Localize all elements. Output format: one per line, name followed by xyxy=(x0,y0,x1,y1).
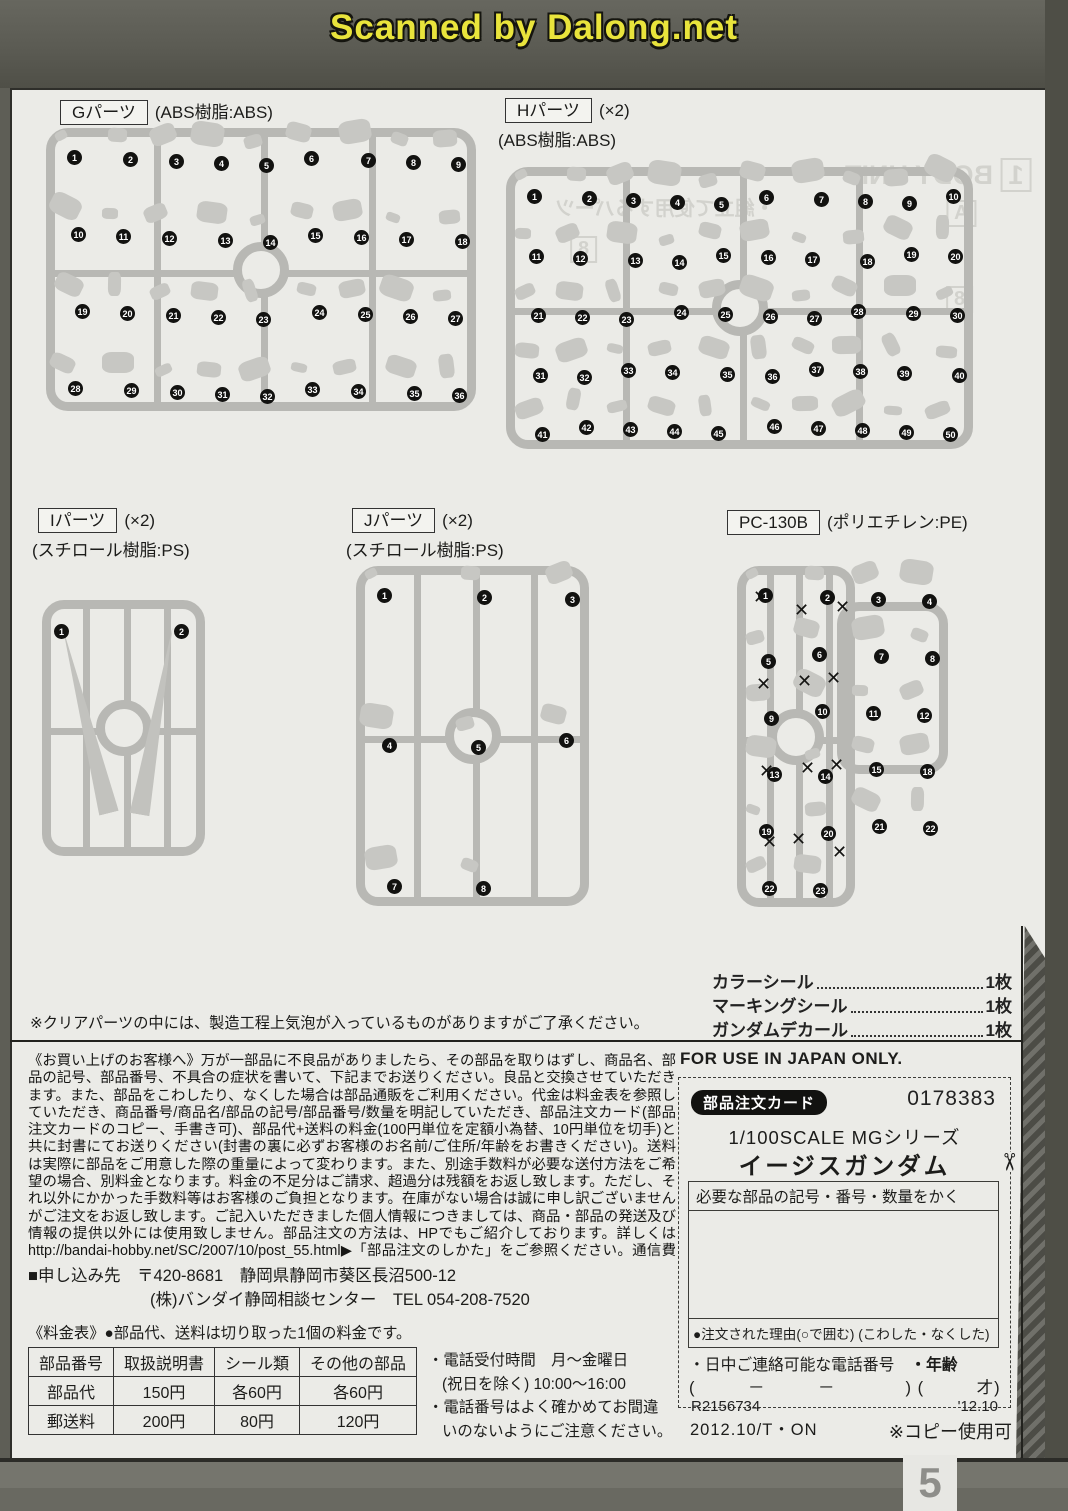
part-number-badge: 26 xyxy=(763,309,778,324)
price-table-cell: 120円 xyxy=(300,1406,417,1435)
runner-j-name: Jパーツ xyxy=(352,508,435,533)
part-number-badge: 9 xyxy=(451,157,466,172)
part-number-badge: 22 xyxy=(211,310,226,325)
application-address-line1: ■申し込み先 〒420-8681 静岡県静岡市葵区長沼500-12 xyxy=(28,1262,456,1286)
part-shape xyxy=(842,229,864,245)
part-number-badge: 7 xyxy=(814,192,829,207)
sticker-name: カラーシール xyxy=(712,968,814,993)
sticker-row: マーキングシール1枚 xyxy=(712,993,1012,1017)
runner-center-ring xyxy=(233,242,289,298)
part-number-badge: 41 xyxy=(535,427,550,442)
part-number-badge: 12 xyxy=(917,708,932,723)
part-number-badge: 21 xyxy=(872,819,887,834)
part-number-badge: 1 xyxy=(54,624,69,639)
part-number-badge: 8 xyxy=(476,881,491,896)
part-number-badge: 13 xyxy=(628,253,643,268)
part-shape xyxy=(883,168,908,187)
part-number-badge: 24 xyxy=(312,305,327,320)
runner-h-name: Hパーツ xyxy=(505,98,592,123)
part-shape xyxy=(832,336,861,355)
price-table-cell: 各60円 xyxy=(300,1377,417,1406)
part-shape xyxy=(745,734,778,759)
part-number-badge: 7 xyxy=(387,879,402,894)
part-number-badge: 9 xyxy=(764,711,779,726)
part-shape xyxy=(438,353,456,379)
parts-runner-pc: ✕✕✕✕✕✕✕✕✕✕✕✕1234567891011121314151819202… xyxy=(737,566,948,907)
parts-runner-g: 1234567891011121314151617181920212223242… xyxy=(46,128,476,411)
part-shape xyxy=(750,334,768,360)
runner-g-name: Gパーツ xyxy=(60,100,148,125)
part-number-badge: 35 xyxy=(407,386,422,401)
unused-slot-x-mark: ✕ xyxy=(835,598,850,616)
unused-slot-x-mark: ✕ xyxy=(794,601,809,619)
sticker-row: カラーシール1枚 xyxy=(712,969,1012,993)
part-number-badge: 3 xyxy=(626,193,641,208)
runner-label-j: Jパーツ(×2) xyxy=(352,508,473,533)
part-number-badge: 19 xyxy=(75,304,90,319)
sticker-row: ガンダムデカール1枚 xyxy=(712,1017,1012,1041)
scanned-manual-page: Scanned by Dalong.net 1 BODY UNIT ・組立て使用… xyxy=(0,0,1068,1511)
part-number-badge: 9 xyxy=(902,196,917,211)
part-shape xyxy=(555,280,584,301)
part-number-badge: 6 xyxy=(559,733,574,748)
part-number-badge: 46 xyxy=(767,419,782,434)
price-table-cell: 200円 xyxy=(114,1406,215,1435)
part-number-badge: 12 xyxy=(162,231,177,246)
phone-note-line: ・電話受付時間 月〜金曜日 xyxy=(428,1349,680,1373)
customer-notice-body: 《お買い上げのお客様へ》万が一部品に不良品がありましたら、その部品を取りはずし、… xyxy=(28,1053,676,1259)
part-number-badge: 10 xyxy=(815,704,830,719)
part-number-badge: 12 xyxy=(573,251,588,266)
part-number-badge: 10 xyxy=(946,189,961,204)
price-table: 部品番号取扱説明書シール類その他の部品部品代150円各60円各60円郵送料200… xyxy=(28,1347,417,1435)
part-number-badge: 7 xyxy=(874,649,889,664)
order-card-product: イージスガンダム xyxy=(679,1147,1010,1181)
part-number-badge: 32 xyxy=(260,389,275,404)
part-number-badge: 2 xyxy=(174,624,189,639)
part-number-badge: 31 xyxy=(533,368,548,383)
part-shape xyxy=(196,200,229,225)
runner-i-name: Iパーツ xyxy=(38,508,117,533)
part-number-badge: 18 xyxy=(860,254,875,269)
part-number-badge: 2 xyxy=(582,191,597,206)
part-number-badge: 11 xyxy=(529,249,544,264)
watermark: Scanned by Dalong.net xyxy=(0,8,1068,48)
part-shape xyxy=(102,352,134,373)
part-shape xyxy=(898,558,934,587)
runner-label-i: Iパーツ(×2) xyxy=(38,508,155,533)
runner-pc-name: PC-130B xyxy=(727,510,820,535)
part-number-badge: 5 xyxy=(714,197,729,212)
part-number-badge: 20 xyxy=(948,249,963,264)
dot-leader xyxy=(851,1011,983,1013)
part-number-badge: 29 xyxy=(906,306,921,321)
part-number-badge: 42 xyxy=(579,420,594,435)
runner-j-material: (スチロール樹脂:PS) xyxy=(346,536,504,561)
print-code: 2012.10/T・ON xyxy=(690,1416,818,1440)
order-card-fill-area: 必要な部品の記号・番号・数量をかく ●注文された理由(○で囲む) (こわした・な… xyxy=(688,1181,999,1348)
part-number-badge: 29 xyxy=(124,383,139,398)
part-number-badge: 45 xyxy=(711,426,726,441)
part-number-badge: 1 xyxy=(527,189,542,204)
part-number-badge: 3 xyxy=(565,592,580,607)
part-shape xyxy=(884,405,903,415)
part-number-badge: 20 xyxy=(821,826,836,841)
bleedthrough-unit-number: 1 xyxy=(1001,158,1032,192)
part-shape xyxy=(190,280,219,301)
part-number-badge: 37 xyxy=(809,362,824,377)
runner-center-ring xyxy=(445,708,501,764)
part-shape xyxy=(102,208,118,220)
sticker-count: 1枚 xyxy=(986,992,1012,1017)
part-shape xyxy=(911,787,924,811)
runner-label-g: Gパーツ(ABS樹脂:ABS) xyxy=(60,98,273,125)
order-card-date: '12.10 xyxy=(958,1398,998,1415)
part-number-badge: 35 xyxy=(720,367,735,382)
part-number-badge: 26 xyxy=(403,309,418,324)
part-shape xyxy=(852,685,868,697)
part-number-badge: 16 xyxy=(761,250,776,265)
section-divider xyxy=(10,1040,1023,1042)
part-number-badge: 4 xyxy=(214,156,229,171)
part-number-badge: 8 xyxy=(925,651,940,666)
part-shape xyxy=(567,167,587,182)
part-number-badge: 39 xyxy=(897,366,912,381)
part-number-badge: 25 xyxy=(718,307,733,322)
part-number-badge: 16 xyxy=(354,230,369,245)
part-number-badge: 14 xyxy=(672,255,687,270)
part-number-badge: 21 xyxy=(166,308,181,323)
part-number-badge: 1 xyxy=(758,588,773,603)
part-number-badge: 34 xyxy=(665,365,680,380)
part-number-badge: 19 xyxy=(904,247,919,262)
part-number-badge: 7 xyxy=(361,153,376,168)
part-number-badge: 6 xyxy=(812,647,827,662)
part-shape xyxy=(438,209,460,225)
part-shape xyxy=(196,361,221,378)
phone-age-blanks: ( － － ) ( 才) xyxy=(689,1374,1001,1398)
price-table-row: 郵送料200円80円120円 xyxy=(29,1406,417,1435)
parts-runner-i: 12 xyxy=(42,600,205,856)
part-number-badge: 4 xyxy=(670,195,685,210)
part-number-badge: 1 xyxy=(67,150,82,165)
part-shape xyxy=(804,801,826,817)
part-number-badge: 28 xyxy=(68,381,83,396)
part-number-badge: 15 xyxy=(716,248,731,263)
part-shape xyxy=(791,289,810,302)
part-number-badge: 19 xyxy=(759,824,774,839)
part-number-badge: 34 xyxy=(351,384,366,399)
order-card-footer: R2156734 '12.10 xyxy=(691,1398,998,1415)
part-number-badge: 50 xyxy=(943,427,958,442)
unused-slot-x-mark: ✕ xyxy=(826,669,841,687)
part-number-badge: 30 xyxy=(950,308,965,323)
price-table-title: 《料金表》●部品代、送料は切り取った1個の料金です。 xyxy=(28,1321,411,1343)
part-number-badge: 20 xyxy=(120,306,135,321)
scissors-icon: ✂ xyxy=(994,1152,1022,1172)
part-number-badge: 22 xyxy=(762,881,777,896)
part-number-badge: 22 xyxy=(923,821,938,836)
contact-phone-label: ・日中ご連絡可能な電話番号 ・年齢 xyxy=(689,1352,958,1375)
price-table-cell: 150円 xyxy=(114,1377,215,1406)
page-number-box: 5 xyxy=(903,1455,957,1511)
sticker-name: マーキングシール xyxy=(712,992,848,1017)
part-number-badge: 36 xyxy=(452,388,467,403)
part-number-badge: 22 xyxy=(575,310,590,325)
price-table-cell: 各60円 xyxy=(215,1377,300,1406)
part-number-badge: 27 xyxy=(807,311,822,326)
unused-slot-x-mark: ✕ xyxy=(797,672,812,690)
part-number-badge: 32 xyxy=(577,370,592,385)
part-number-badge: 8 xyxy=(406,155,421,170)
part-shape xyxy=(108,128,128,143)
application-address-line2: (株)バンダイ静岡相談センター TEL 054-208-7520 xyxy=(150,1286,530,1310)
customer-notice: 《お買い上げのお客様へ》万が一部品に不良品がありましたら、その部品を取りはずし、… xyxy=(28,1053,676,1259)
price-table-header: シール類 xyxy=(215,1348,300,1377)
page-number: 5 xyxy=(918,1459,941,1507)
dot-leader xyxy=(851,1035,983,1037)
phone-note-line: ・電話番号はよく確かめてお間違 xyxy=(428,1396,680,1420)
part-number-badge: 1 xyxy=(377,588,392,603)
part-number-badge: 13 xyxy=(767,767,782,782)
sticker-list: カラーシール1枚マーキングシール1枚ガンダムデカール1枚 xyxy=(712,969,1012,1041)
japan-only-label: FOR USE IN JAPAN ONLY. xyxy=(680,1049,903,1069)
part-number-badge: 2 xyxy=(123,152,138,167)
part-number-badge: 48 xyxy=(855,423,870,438)
part-number-badge: 4 xyxy=(922,594,937,609)
price-table-cell: 部品代 xyxy=(29,1377,114,1406)
part-number-badge: 5 xyxy=(761,654,776,669)
part-shape xyxy=(432,129,457,148)
price-table-cell: 郵送料 xyxy=(29,1406,114,1435)
dot-leader xyxy=(817,987,983,989)
runner-i-material: (スチロール樹脂:PS) xyxy=(32,536,190,561)
part-number-badge: 18 xyxy=(455,234,470,249)
part-number-badge: 6 xyxy=(304,151,319,166)
part-number-badge: 49 xyxy=(899,425,914,440)
part-number-badge: 43 xyxy=(623,422,638,437)
runner-label-h: Hパーツ(×2) xyxy=(505,98,630,123)
price-table-cell: 80円 xyxy=(215,1406,300,1435)
part-shape xyxy=(432,289,451,302)
fill-instruction: 必要な部品の記号・番号・数量をかく xyxy=(689,1182,998,1211)
unused-slot-x-mark: ✕ xyxy=(791,830,806,848)
order-card-badge: 部品注文カード xyxy=(691,1090,827,1115)
part-number-badge: 27 xyxy=(448,311,463,326)
part-shape xyxy=(805,566,825,581)
part-number-badge: 6 xyxy=(759,190,774,205)
part-number-badge: 21 xyxy=(531,308,546,323)
part-number-badge: 8 xyxy=(858,194,873,209)
part-number-badge: 23 xyxy=(256,312,271,327)
part-number-badge: 36 xyxy=(765,369,780,384)
part-shape xyxy=(515,228,531,240)
part-number-badge: 5 xyxy=(259,158,274,173)
part-number-badge: 30 xyxy=(170,385,185,400)
scan-right-margin xyxy=(1045,0,1068,1511)
part-number-badge: 28 xyxy=(851,304,866,319)
part-number-badge: 14 xyxy=(818,769,833,784)
part-number-badge: 14 xyxy=(263,235,278,250)
part-shape xyxy=(792,396,819,412)
part-number-badge: 10 xyxy=(71,227,86,242)
order-card-number: 0178383 xyxy=(907,1087,996,1111)
part-shape xyxy=(461,566,481,581)
part-number-badge: 31 xyxy=(215,387,230,402)
parts-order-card: 部品注文カード 0178383 1/100SCALE MGシリーズ イージスガン… xyxy=(678,1077,1011,1408)
clear-parts-note: ※クリアパーツの中には、製造工程上気泡が入っているものがありますがご了承ください… xyxy=(30,1011,670,1033)
parts-runner-h: 1234567891011121314151617181920212223242… xyxy=(506,167,973,449)
price-table-header: 取扱説明書 xyxy=(114,1348,215,1377)
order-card-code: R2156734 xyxy=(691,1398,760,1415)
part-shape xyxy=(793,853,822,874)
part-number-badge: 25 xyxy=(358,307,373,322)
part-number-badge: 3 xyxy=(871,592,886,607)
price-table-header: 部品番号 xyxy=(29,1348,114,1377)
part-number-badge: 33 xyxy=(305,382,320,397)
unused-slot-x-mark: ✕ xyxy=(832,843,847,861)
part-number-badge: 44 xyxy=(667,424,682,439)
part-number-badge: 11 xyxy=(116,229,131,244)
part-shape xyxy=(936,345,958,359)
part-shape xyxy=(606,220,639,245)
parts-runner-j: 12345678 xyxy=(356,566,589,906)
part-number-badge: 23 xyxy=(619,312,634,327)
unused-slot-x-mark: ✕ xyxy=(800,759,815,777)
part-shape xyxy=(514,342,539,359)
part-number-badge: 2 xyxy=(820,590,835,605)
part-number-badge: 40 xyxy=(952,368,967,383)
part-number-badge: 3 xyxy=(169,154,184,169)
part-number-badge: 17 xyxy=(399,232,414,247)
part-shape xyxy=(108,272,121,296)
runner-label-pc: PC-130B(ポリエチレン:PE) xyxy=(727,508,968,535)
phone-note-line: (祝日を除く) 10:00〜16:00 xyxy=(428,1373,680,1397)
part-number-badge: 15 xyxy=(308,228,323,243)
part-number-badge: 4 xyxy=(382,738,397,753)
copy-permission-note: ※コピー使用可 xyxy=(860,1418,1012,1444)
part-shape xyxy=(884,275,916,296)
runner-h-material: (ABS樹脂:ABS) xyxy=(498,126,616,151)
runner-center-ring xyxy=(96,700,152,756)
part-shape xyxy=(936,215,949,239)
part-number-badge: 23 xyxy=(813,883,828,898)
age-label: ・年齢 xyxy=(910,1357,957,1374)
part-number-badge: 15 xyxy=(869,762,884,777)
sticker-count: 1枚 xyxy=(986,968,1012,993)
part-number-badge: 2 xyxy=(477,590,492,605)
part-number-badge: 18 xyxy=(920,764,935,779)
part-number-badge: 5 xyxy=(471,740,486,755)
page-edge-line xyxy=(1021,926,1023,1458)
phone-note-line: いのないようにご注意ください。 xyxy=(428,1420,680,1444)
order-reason-line: ●注文された理由(○で囲む) (こわした・なくした) xyxy=(689,1318,998,1347)
price-table-row: 部品代150円各60円各60円 xyxy=(29,1377,417,1406)
price-table-header: その他の部品 xyxy=(300,1348,417,1377)
sticker-count: 1枚 xyxy=(986,1016,1012,1041)
part-number-badge: 33 xyxy=(621,363,636,378)
phone-notes: ・電話受付時間 月〜金曜日(祝日を除く) 10:00〜16:00・電話番号はよく… xyxy=(428,1349,680,1443)
part-number-badge: 24 xyxy=(674,305,689,320)
part-number-badge: 47 xyxy=(811,421,826,436)
part-number-badge: 17 xyxy=(805,252,820,267)
sticker-name: ガンダムデカール xyxy=(712,1016,848,1041)
part-number-badge: 38 xyxy=(853,364,868,379)
unused-slot-x-mark: ✕ xyxy=(756,675,771,693)
part-number-badge: 13 xyxy=(218,233,233,248)
part-number-badge: 11 xyxy=(866,706,881,721)
